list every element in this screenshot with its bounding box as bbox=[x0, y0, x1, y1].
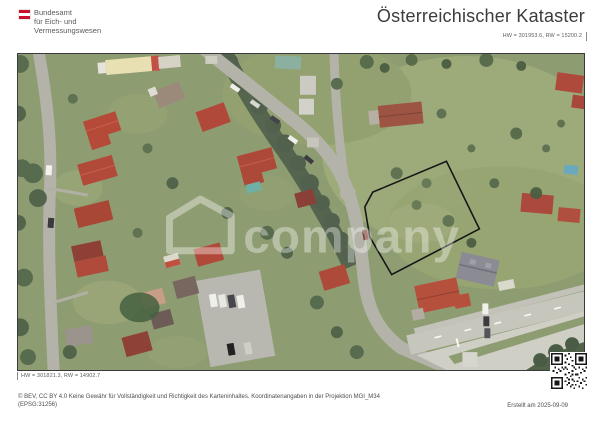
tick-mark bbox=[17, 372, 18, 380]
logo-line: Vermessungswesen bbox=[34, 26, 101, 35]
license-line: (EPSG:31256) bbox=[18, 402, 448, 410]
page-title: Österreichischer Kataster bbox=[377, 6, 585, 27]
license-line: © BEV, CC BY 4.0 Keine Gewähr für Vollst… bbox=[18, 394, 448, 402]
bev-logo-text: Bundesamt für Eich- und Vermessungswesen bbox=[34, 8, 101, 35]
austria-flag-icon bbox=[19, 10, 30, 19]
cadastral-print-page: Bundesamt für Eich- und Vermessungswesen… bbox=[0, 0, 600, 425]
cadastral-map-viewport: company bbox=[17, 53, 585, 371]
watermark-text: company bbox=[243, 211, 460, 264]
tick-mark bbox=[586, 32, 587, 41]
coord-label-bottom-left: HW = 301821.3, RW = 14902.7 bbox=[21, 373, 100, 379]
license-note: © BEV, CC BY 4.0 Keine Gewähr für Vollst… bbox=[18, 394, 448, 409]
created-date-label: Erstellt am 2025-09-09 bbox=[507, 403, 568, 409]
qr-code bbox=[550, 352, 588, 390]
logo-line: für Eich- und bbox=[34, 17, 101, 26]
coord-label-top-right: HW = 301953.6, RW = 15200.2 bbox=[503, 33, 582, 39]
aerial-photo: company bbox=[18, 54, 584, 370]
logo-line: Bundesamt bbox=[34, 8, 101, 17]
